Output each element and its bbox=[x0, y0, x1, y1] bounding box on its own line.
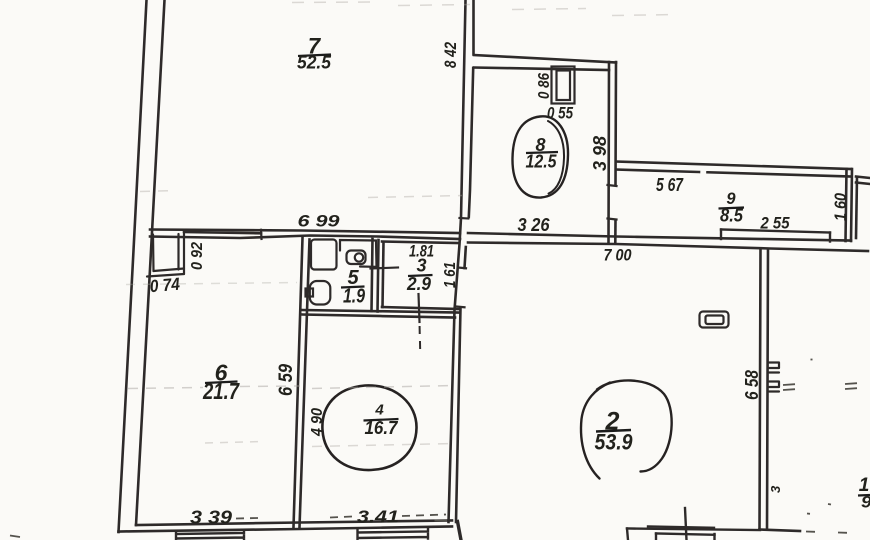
svg-text:5 67: 5 67 bbox=[656, 175, 684, 195]
svg-text:1 61: 1 61 bbox=[442, 262, 459, 288]
svg-text:1.9: 1.9 bbox=[343, 286, 366, 308]
svg-text:4 90: 4 90 bbox=[309, 408, 326, 437]
svg-text:53.9: 53.9 bbox=[595, 430, 634, 455]
svg-text:8 42: 8 42 bbox=[441, 42, 460, 68]
svg-text:21.7: 21.7 bbox=[202, 378, 240, 404]
svg-text:3: 3 bbox=[416, 256, 426, 276]
svg-text:3 39: 3 39 bbox=[190, 507, 233, 528]
svg-text:4: 4 bbox=[374, 402, 384, 419]
svg-text:3: 3 bbox=[768, 485, 783, 493]
svg-text:3 98: 3 98 bbox=[590, 136, 610, 171]
svg-text:16.7: 16.7 bbox=[365, 418, 399, 438]
svg-text:12.5: 12.5 bbox=[526, 152, 558, 172]
svg-text:6 59: 6 59 bbox=[276, 364, 297, 396]
svg-text:0 86: 0 86 bbox=[536, 73, 553, 99]
svg-text:2.9: 2.9 bbox=[406, 274, 431, 294]
svg-text:0 55: 0 55 bbox=[547, 105, 574, 123]
svg-text:7 00: 7 00 bbox=[604, 247, 633, 265]
svg-text:8.5: 8.5 bbox=[720, 206, 744, 226]
svg-text:2 55: 2 55 bbox=[760, 215, 791, 233]
svg-text:1 60: 1 60 bbox=[831, 193, 850, 221]
svg-text:6 99: 6 99 bbox=[298, 213, 341, 231]
svg-text:0 74: 0 74 bbox=[149, 274, 181, 297]
svg-text:9.: 9. bbox=[861, 494, 870, 512]
svg-text:0 92: 0 92 bbox=[189, 242, 206, 270]
svg-text:3 26: 3 26 bbox=[518, 215, 551, 235]
svg-text:3.41: 3.41 bbox=[357, 507, 399, 527]
svg-text:52.5: 52.5 bbox=[297, 53, 332, 73]
svg-text:6 58: 6 58 bbox=[741, 369, 762, 400]
